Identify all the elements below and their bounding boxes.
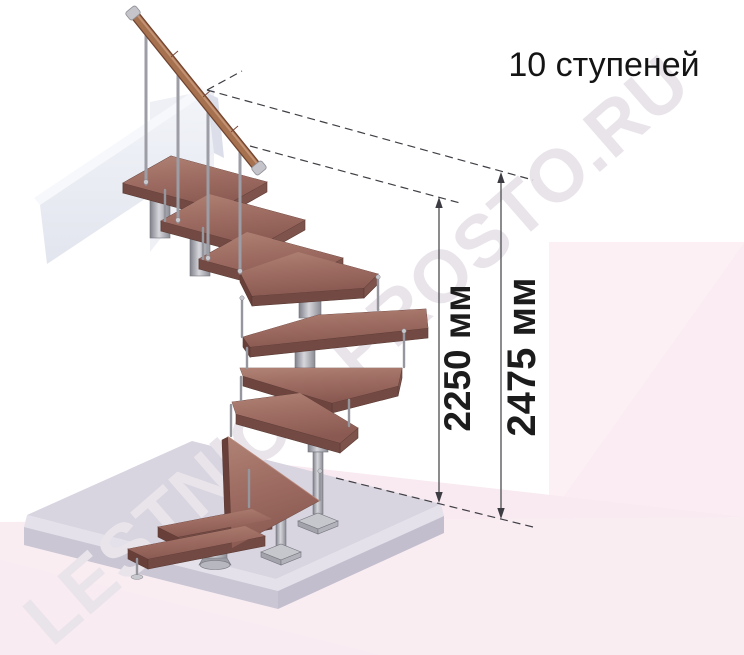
column-leg bbox=[313, 452, 323, 514]
staircase-diagram: LESTNICA-PROSTO.RU bbox=[0, 0, 744, 655]
staircase-3d-render: LESTNICA-PROSTO.RU bbox=[0, 0, 744, 655]
extension-line-top-step bbox=[250, 146, 460, 203]
dimension-label-stair-height: 2250 мм bbox=[437, 284, 478, 431]
dimension-label-total-height: 2475 мм bbox=[500, 277, 544, 436]
page-title: 10 ступеней bbox=[508, 46, 699, 84]
extension-line-top-depth bbox=[207, 71, 242, 90]
rod-foot bbox=[131, 575, 143, 580]
